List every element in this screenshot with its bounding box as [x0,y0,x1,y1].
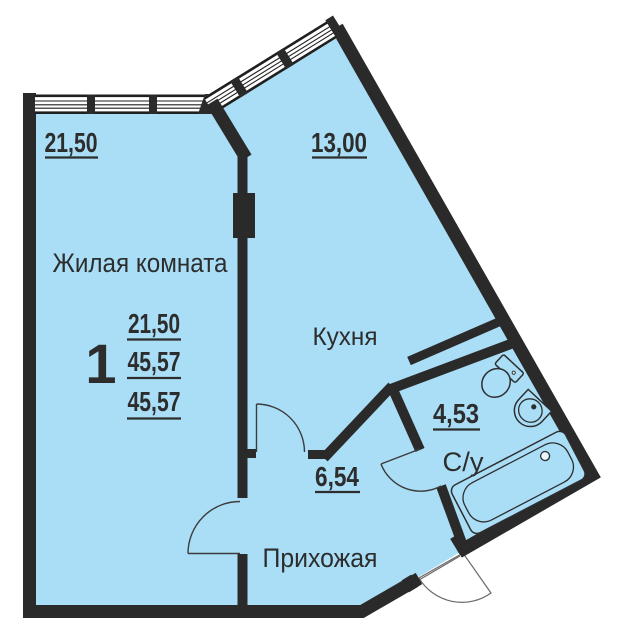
living-window-icon [35,94,222,114]
bathroom-label: С/у [443,447,485,477]
floor-plan-canvas: 21,50 13,00 Жилая комната 1 21,50 45,57 … [0,0,622,640]
floor-plan: 21,50 13,00 Жилая комната 1 21,50 45,57 … [0,0,622,640]
summary-value-2: 45,57 [128,346,181,377]
wall-pier [233,193,255,238]
hallway-label: Прихожая [263,543,378,573]
rooms-count: 1 [85,332,116,395]
summary-value-3: 45,57 [128,386,181,417]
summary-value-1: 21,50 [128,308,180,339]
living-area-value: 21,50 [45,127,98,158]
hallway-area-value: 6,54 [315,461,359,492]
kitchen-area-value: 13,00 [311,127,367,158]
bathroom-area-value: 4,53 [433,398,479,429]
kitchen-label: Кухня [313,323,378,351]
living-room-label: Жилая комната [53,248,229,278]
